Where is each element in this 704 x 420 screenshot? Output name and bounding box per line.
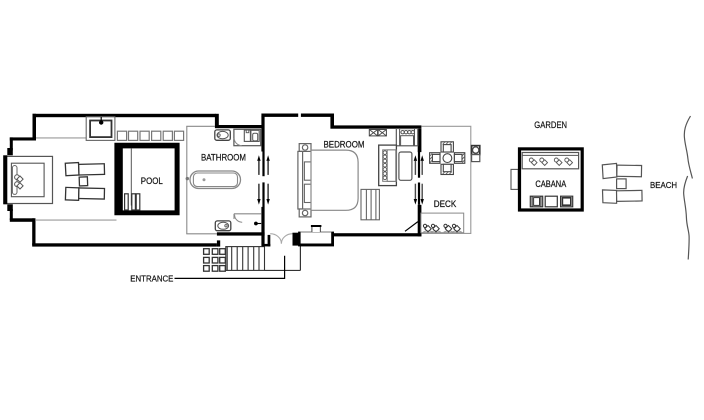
svg-text:ENTRANCE: ENTRANCE <box>130 274 173 284</box>
svg-text:GARDEN: GARDEN <box>534 120 567 130</box>
svg-text:BEACH: BEACH <box>650 180 677 190</box>
svg-text:CABANA: CABANA <box>535 179 566 189</box>
svg-text:POOL: POOL <box>141 176 163 186</box>
svg-text:DECK: DECK <box>434 199 457 209</box>
svg-text:BEDROOM: BEDROOM <box>324 139 365 149</box>
svg-text:BATHROOM: BATHROOM <box>201 153 246 163</box>
